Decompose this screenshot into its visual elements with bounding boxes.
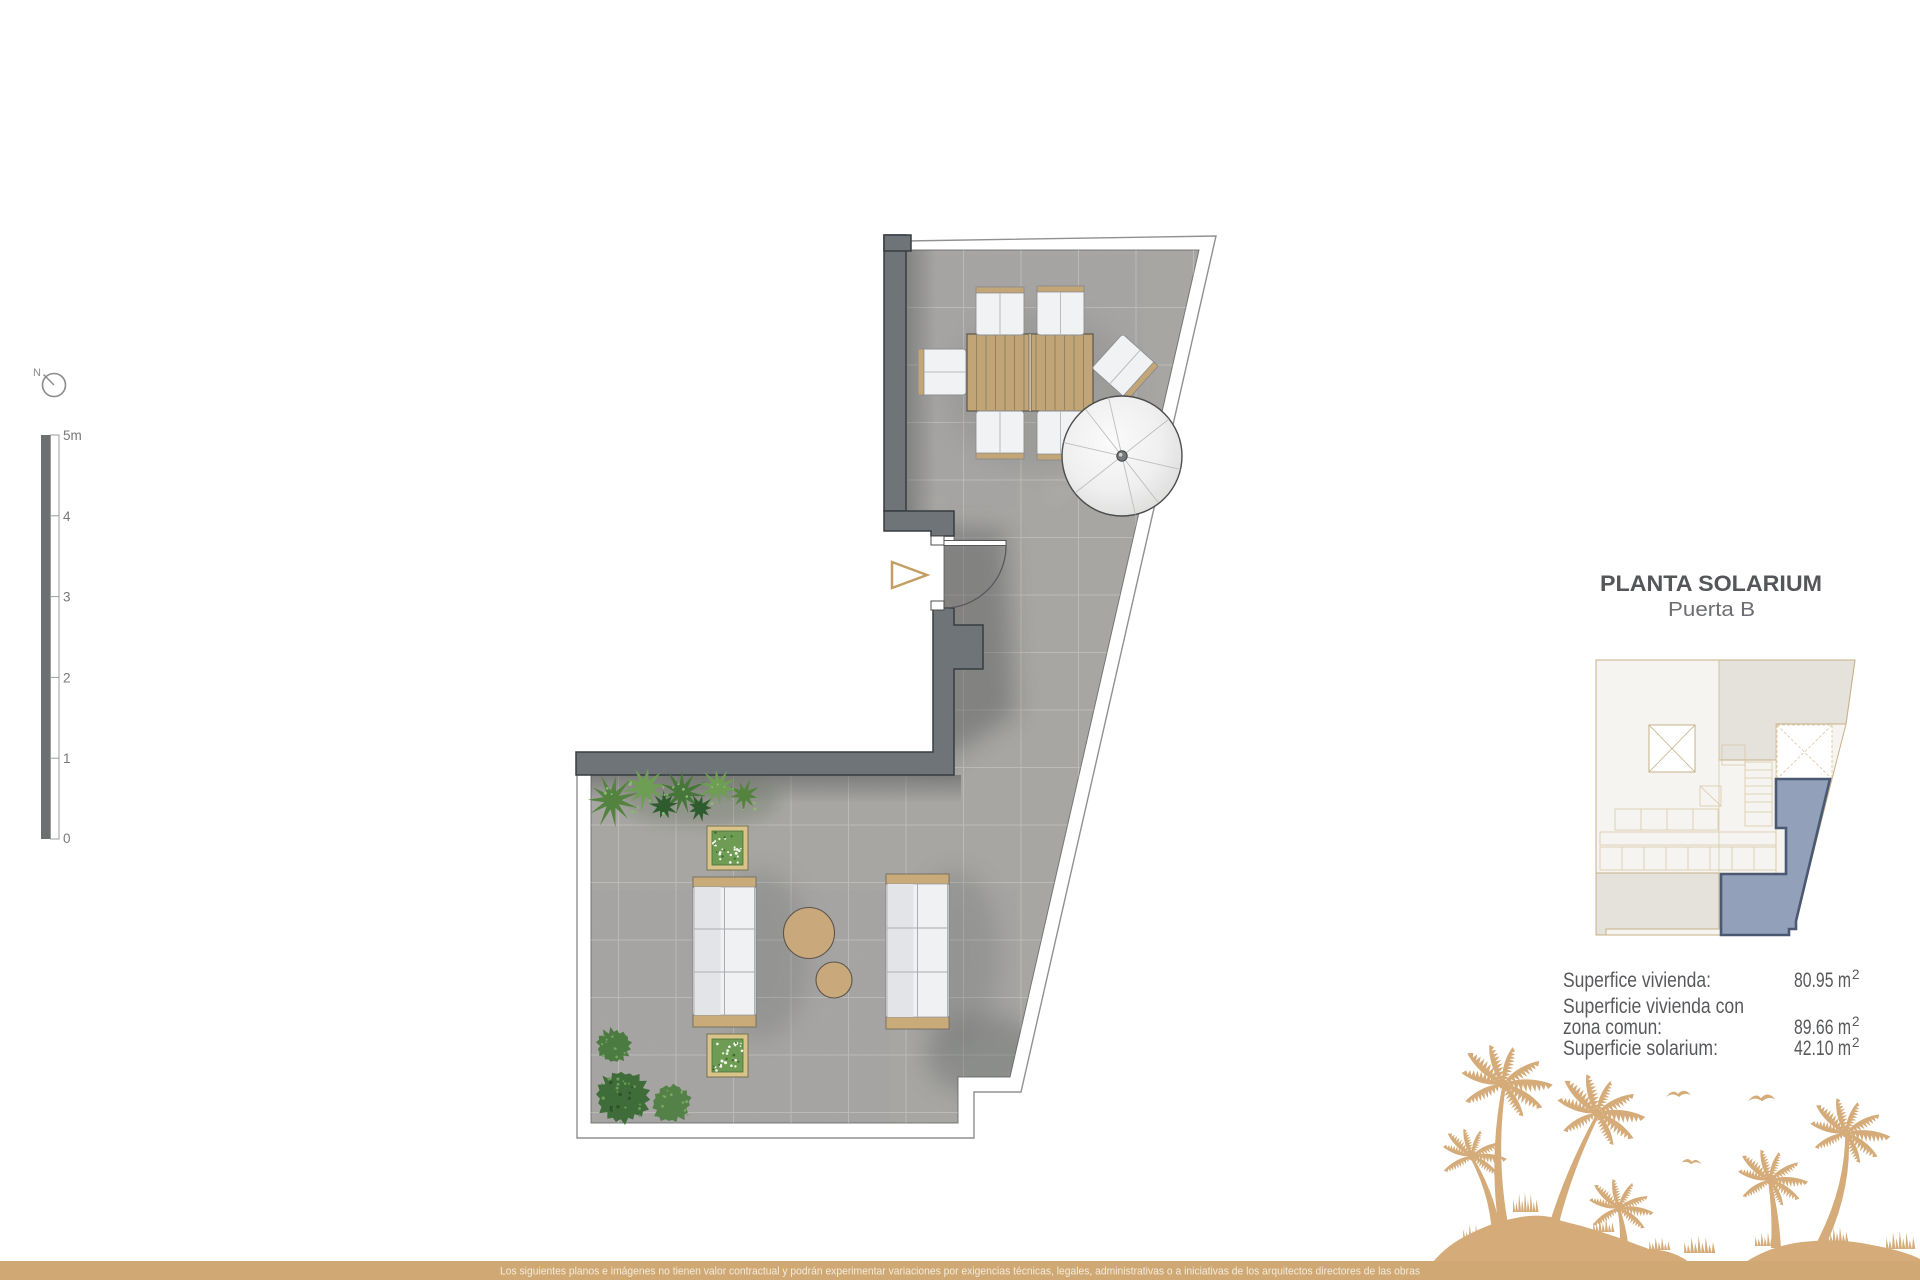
svg-text:zona comun:: zona comun: xyxy=(1563,1016,1662,1039)
svg-text:3: 3 xyxy=(63,590,71,605)
svg-text:1: 1 xyxy=(63,751,71,766)
svg-text:2: 2 xyxy=(63,670,71,685)
svg-text:2: 2 xyxy=(1852,967,1860,982)
svg-text:80.95 m: 80.95 m xyxy=(1794,969,1851,992)
svg-text:Puerta B: Puerta B xyxy=(1668,598,1755,621)
svg-text:4: 4 xyxy=(63,509,71,524)
svg-text:Superfice vivienda:: Superfice vivienda: xyxy=(1563,969,1711,992)
svg-text:N: N xyxy=(33,367,41,379)
svg-text:0: 0 xyxy=(63,831,71,846)
svg-text:Superficie solarium:: Superficie solarium: xyxy=(1563,1037,1718,1060)
svg-text:Superficie vivienda con: Superficie vivienda con xyxy=(1563,995,1744,1018)
svg-text:PLANTA SOLARIUM: PLANTA SOLARIUM xyxy=(1600,571,1822,596)
svg-text:2: 2 xyxy=(1852,1014,1860,1029)
svg-text:2: 2 xyxy=(1852,1035,1860,1050)
svg-text:Los siguientes planos e imágen: Los siguientes planos e imágenes no tien… xyxy=(500,1266,1420,1278)
svg-text:89.66 m: 89.66 m xyxy=(1794,1016,1851,1039)
svg-text:42.10 m: 42.10 m xyxy=(1794,1037,1851,1060)
svg-text:5m: 5m xyxy=(63,428,82,443)
